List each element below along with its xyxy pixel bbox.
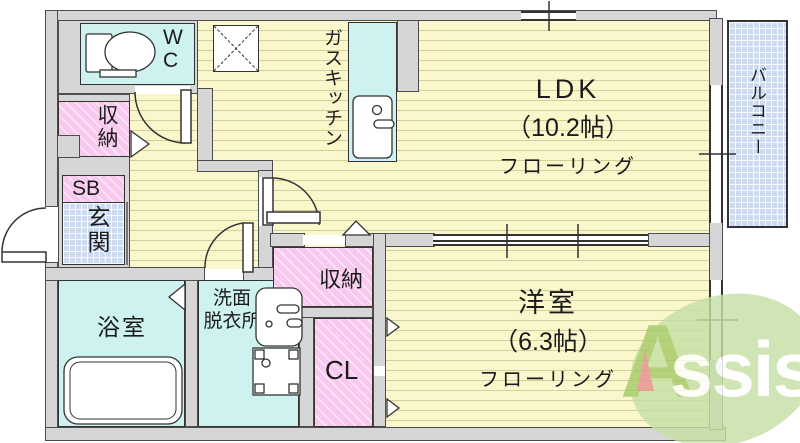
wall-bath-top-right xyxy=(243,267,277,281)
storage-center-opening xyxy=(303,235,347,245)
washroom-door-opening xyxy=(205,269,243,280)
western-room-label-block: 洋室 （6.3帖） フローリング xyxy=(430,281,666,392)
window-top xyxy=(521,11,576,21)
closet-label: CL xyxy=(325,355,358,386)
closet-door-opening xyxy=(374,366,385,376)
entrance-opening xyxy=(45,207,58,262)
shoe-box-label: SB xyxy=(72,177,100,201)
wall-main-a xyxy=(270,233,305,247)
storage-left-label: 収納 xyxy=(91,104,121,158)
ldk-name: LDK xyxy=(450,74,686,105)
wall-storage-closet xyxy=(299,307,373,318)
ldk-floor: フローリング xyxy=(450,150,686,179)
wall-main-c xyxy=(648,233,710,247)
wall-left-upper xyxy=(45,10,58,207)
window-ldk-balcony xyxy=(709,85,723,223)
wc-door-opening xyxy=(135,86,190,94)
bathroom-room xyxy=(58,280,185,427)
washroom-label: 洗面 脱衣所 xyxy=(194,288,270,334)
western-room-name: 洋室 xyxy=(430,281,666,320)
kitchen-label: ガスキッチン xyxy=(318,28,345,163)
wall-wc-right xyxy=(197,88,213,164)
floorplan: WC ガスキッチン LDK （10.2帖） フローリング バルコニー 収納 SB… xyxy=(0,0,800,443)
wc-label: WC xyxy=(163,26,189,72)
window-western xyxy=(709,280,723,360)
ldk-door-opening xyxy=(259,177,272,226)
wall-left-lower xyxy=(45,262,58,428)
washroom-line2: 脱衣所 xyxy=(194,311,270,334)
entrance-door xyxy=(2,208,46,262)
wall-bottom xyxy=(45,427,726,441)
storage-left-notch xyxy=(57,135,80,158)
wall-bath-top xyxy=(45,267,205,281)
ldk-label-block: LDK （10.2帖） フローリング xyxy=(450,74,686,179)
wall-closet-right xyxy=(373,233,386,427)
bathroom-label: 浴室 xyxy=(97,308,147,342)
wall-right xyxy=(709,18,723,430)
western-room-size: （6.3帖） xyxy=(430,322,666,358)
wall-washroom-right xyxy=(299,307,314,427)
balcony-label: バルコニー xyxy=(744,66,769,181)
entrance-label: 玄関 xyxy=(80,205,114,263)
western-room-floor: フローリング xyxy=(430,363,666,392)
wall-main-b xyxy=(345,233,435,247)
kitchen-unit xyxy=(348,22,397,162)
ldk-size: （10.2帖） xyxy=(450,108,686,144)
pipe-space-box xyxy=(213,25,259,72)
storage-center-label: 収納 xyxy=(319,262,363,294)
sliding-door-ldk-western xyxy=(433,234,650,246)
wall-kitchen-right xyxy=(397,20,419,92)
washroom-line1: 洗面 xyxy=(194,288,270,311)
